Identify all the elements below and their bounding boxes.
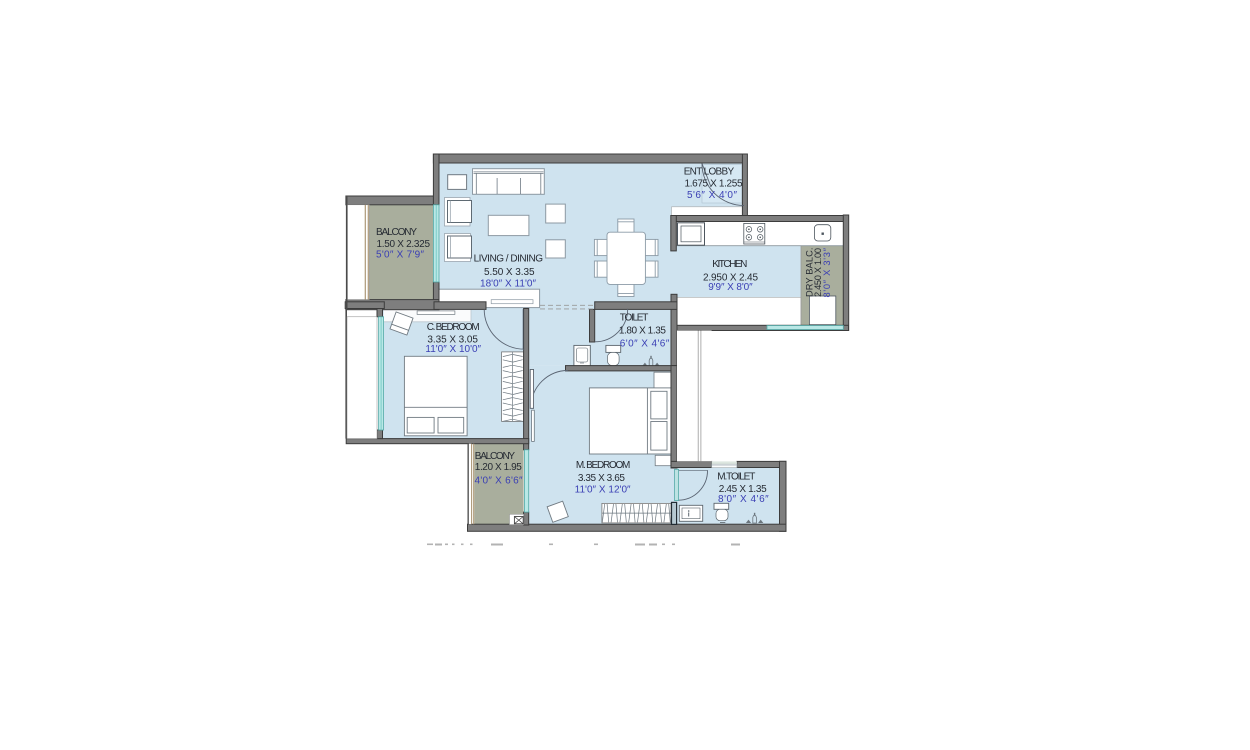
svg-text:C. BEDROOM: C. BEDROOM (427, 322, 480, 333)
svg-text:3.35 X 3.65: 3.35 X 3.65 (578, 473, 625, 484)
svg-text:ENT LOBBY: ENT LOBBY (684, 167, 735, 178)
svg-text:6'0″ X 4'6″: 6'0″ X 4'6″ (620, 339, 670, 350)
svg-text:4'0″ X 6'6″: 4'0″ X 6'6″ (475, 475, 523, 486)
svg-text:1.675 X 1.255: 1.675 X 1.255 (685, 179, 743, 190)
svg-text:M.TOILET: M.TOILET (717, 472, 755, 483)
svg-text:9'9″ X 8'0″: 9'9″ X 8'0″ (708, 282, 753, 293)
svg-text:18'0″ X 11'0″: 18'0″ X 11'0″ (480, 279, 536, 290)
svg-text:8'0″ X 4'6″: 8'0″ X 4'6″ (718, 494, 769, 505)
svg-text:LIVING / DINING: LIVING / DINING (474, 254, 544, 265)
svg-text:BALCONY: BALCONY (376, 227, 417, 238)
svg-text:11'0″ X 12'0″: 11'0″ X 12'0″ (575, 485, 631, 496)
svg-text:1.50 X 2.325: 1.50 X 2.325 (377, 239, 431, 250)
svg-text:5'6″ X 4'0″: 5'6″ X 4'0″ (687, 190, 737, 201)
svg-text:8'0″ X 3'3″: 8'0″ X 3'3″ (822, 247, 832, 297)
svg-text:1.80 X 1.35: 1.80 X 1.35 (619, 326, 666, 337)
svg-text:11'0″ X 10'0″: 11'0″ X 10'0″ (425, 344, 481, 355)
svg-text:5.50 X 3.35: 5.50 X 3.35 (484, 267, 535, 278)
svg-text:TOILET: TOILET (620, 312, 649, 323)
svg-text:1.20 X 1.95: 1.20 X 1.95 (475, 462, 522, 473)
svg-text:KITCHEN: KITCHEN (712, 259, 747, 270)
svg-text:5'0″ X 7'9″: 5'0″ X 7'9″ (376, 250, 424, 261)
svg-text:BALCONY: BALCONY (475, 451, 516, 462)
svg-text:M. BEDROOM: M. BEDROOM (576, 460, 631, 471)
